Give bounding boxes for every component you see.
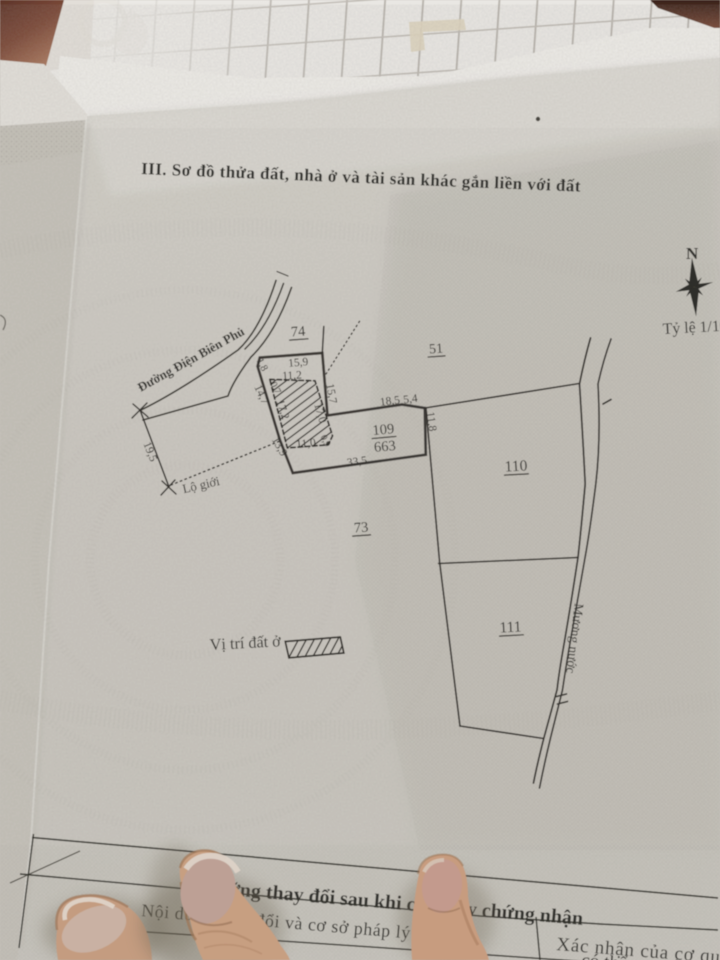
svg-text:51: 51	[429, 342, 444, 358]
svg-text:74: 74	[290, 323, 306, 340]
svg-text:111: 111	[499, 618, 522, 636]
svg-text:5,4: 5,4	[403, 393, 419, 407]
svg-text:Vị trí đất ở: Vị trí đất ở	[209, 632, 281, 654]
svg-text:11,0: 11,0	[296, 437, 317, 451]
svg-text:663: 663	[373, 438, 396, 456]
svg-text:15,9: 15,9	[288, 356, 309, 370]
svg-text:Tỷ lệ 1/10: Tỷ lệ 1/10	[662, 318, 720, 338]
svg-text:18,5: 18,5	[379, 394, 401, 408]
svg-text:11,2: 11,2	[282, 369, 303, 382]
svg-text:73: 73	[353, 520, 369, 537]
svg-text:110: 110	[504, 457, 528, 475]
